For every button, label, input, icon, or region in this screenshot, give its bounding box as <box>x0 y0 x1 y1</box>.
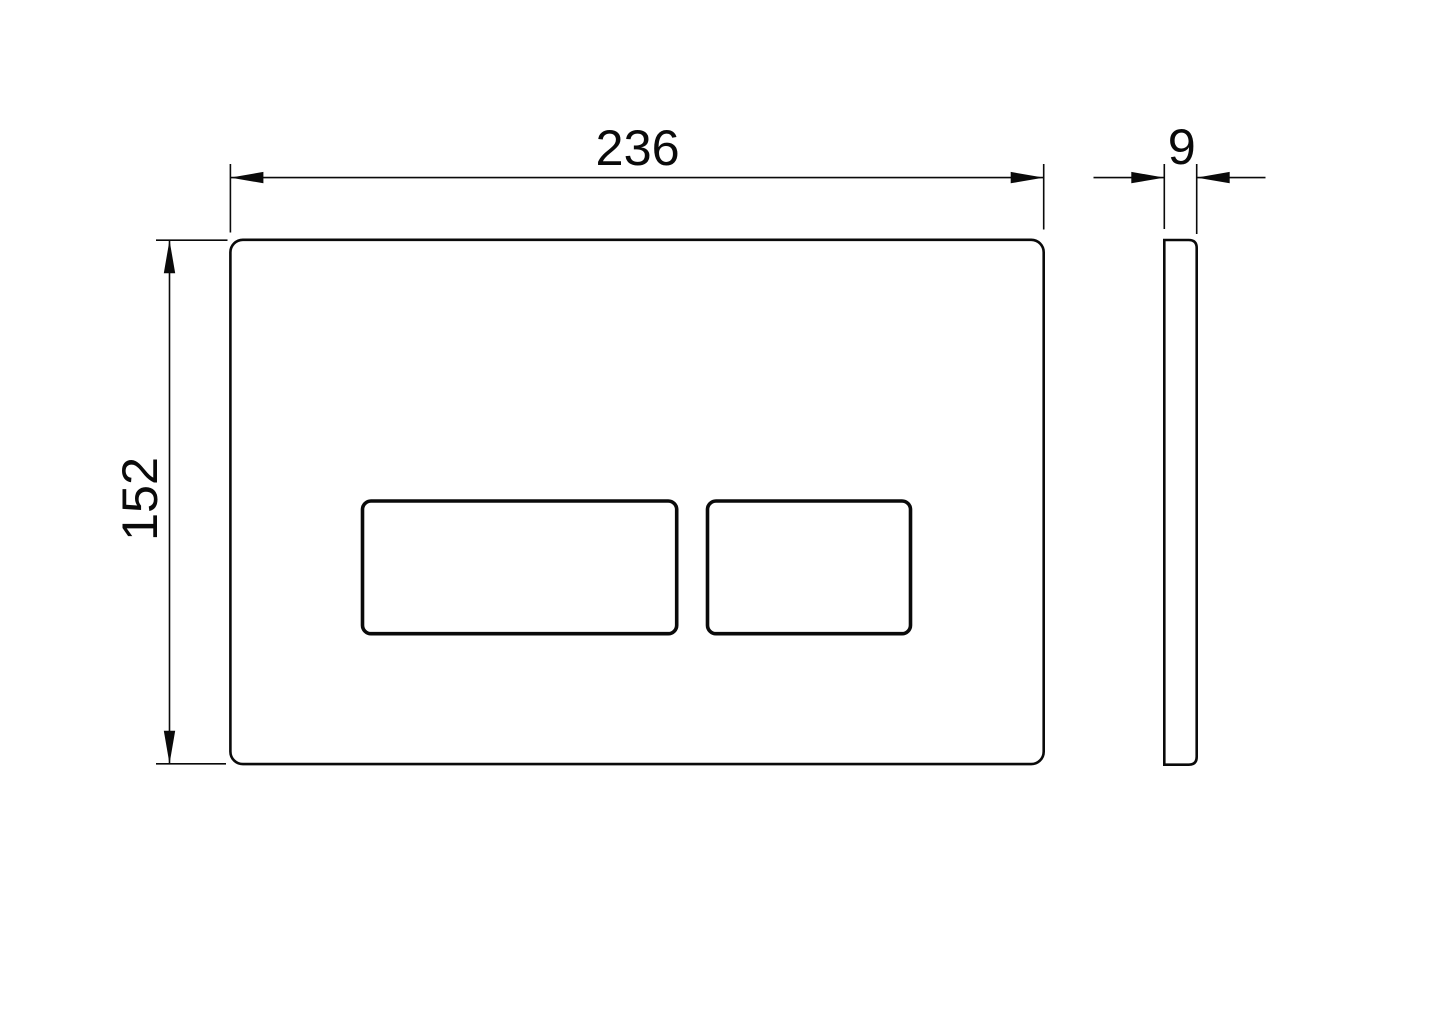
svg-text:236: 236 <box>596 119 680 176</box>
svg-text:9: 9 <box>1168 118 1196 175</box>
svg-text:152: 152 <box>111 457 168 541</box>
